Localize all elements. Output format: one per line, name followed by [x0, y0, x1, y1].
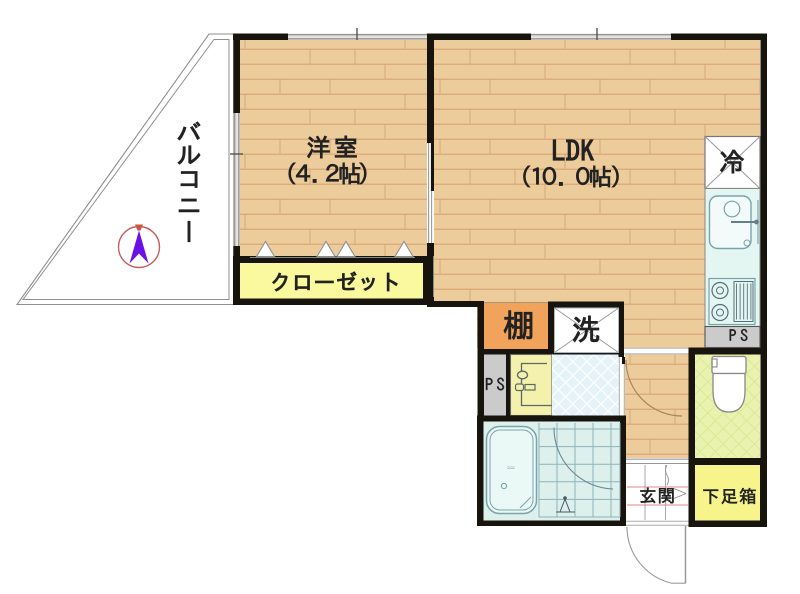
svg-text:≈≈: ≈≈: [507, 465, 515, 472]
